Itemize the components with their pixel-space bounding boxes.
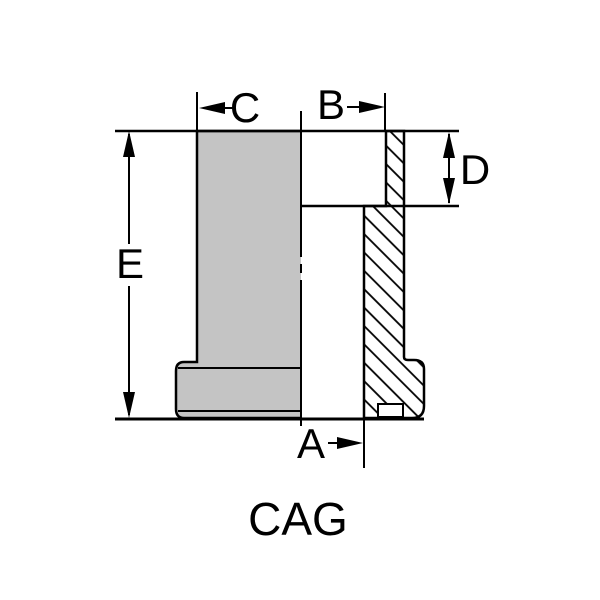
dim-label-a: A — [297, 420, 325, 467]
dim-e-arrow-down — [123, 392, 135, 418]
dim-b-arrow-right — [359, 101, 385, 113]
dim-d-arrow-up — [443, 132, 455, 158]
part-silhouette-fill — [176, 131, 301, 418]
part-section-hatch — [364, 131, 424, 418]
dim-label-b: B — [317, 81, 345, 128]
dim-label-e: E — [116, 240, 144, 287]
dim-c-arrow-left — [199, 102, 225, 114]
dim-label-d: D — [460, 146, 490, 193]
bottom-notch — [378, 404, 403, 417]
technical-drawing-canvas: E D C B A CAG — [0, 0, 600, 600]
dim-a-arrow-right — [337, 437, 363, 449]
dim-label-c: C — [230, 84, 260, 131]
part-title: CAG — [248, 493, 348, 545]
dim-e-arrow-up — [123, 131, 135, 157]
cross-section-diagram: E D C B A CAG — [0, 0, 600, 600]
dim-d-arrow-down — [443, 178, 455, 204]
